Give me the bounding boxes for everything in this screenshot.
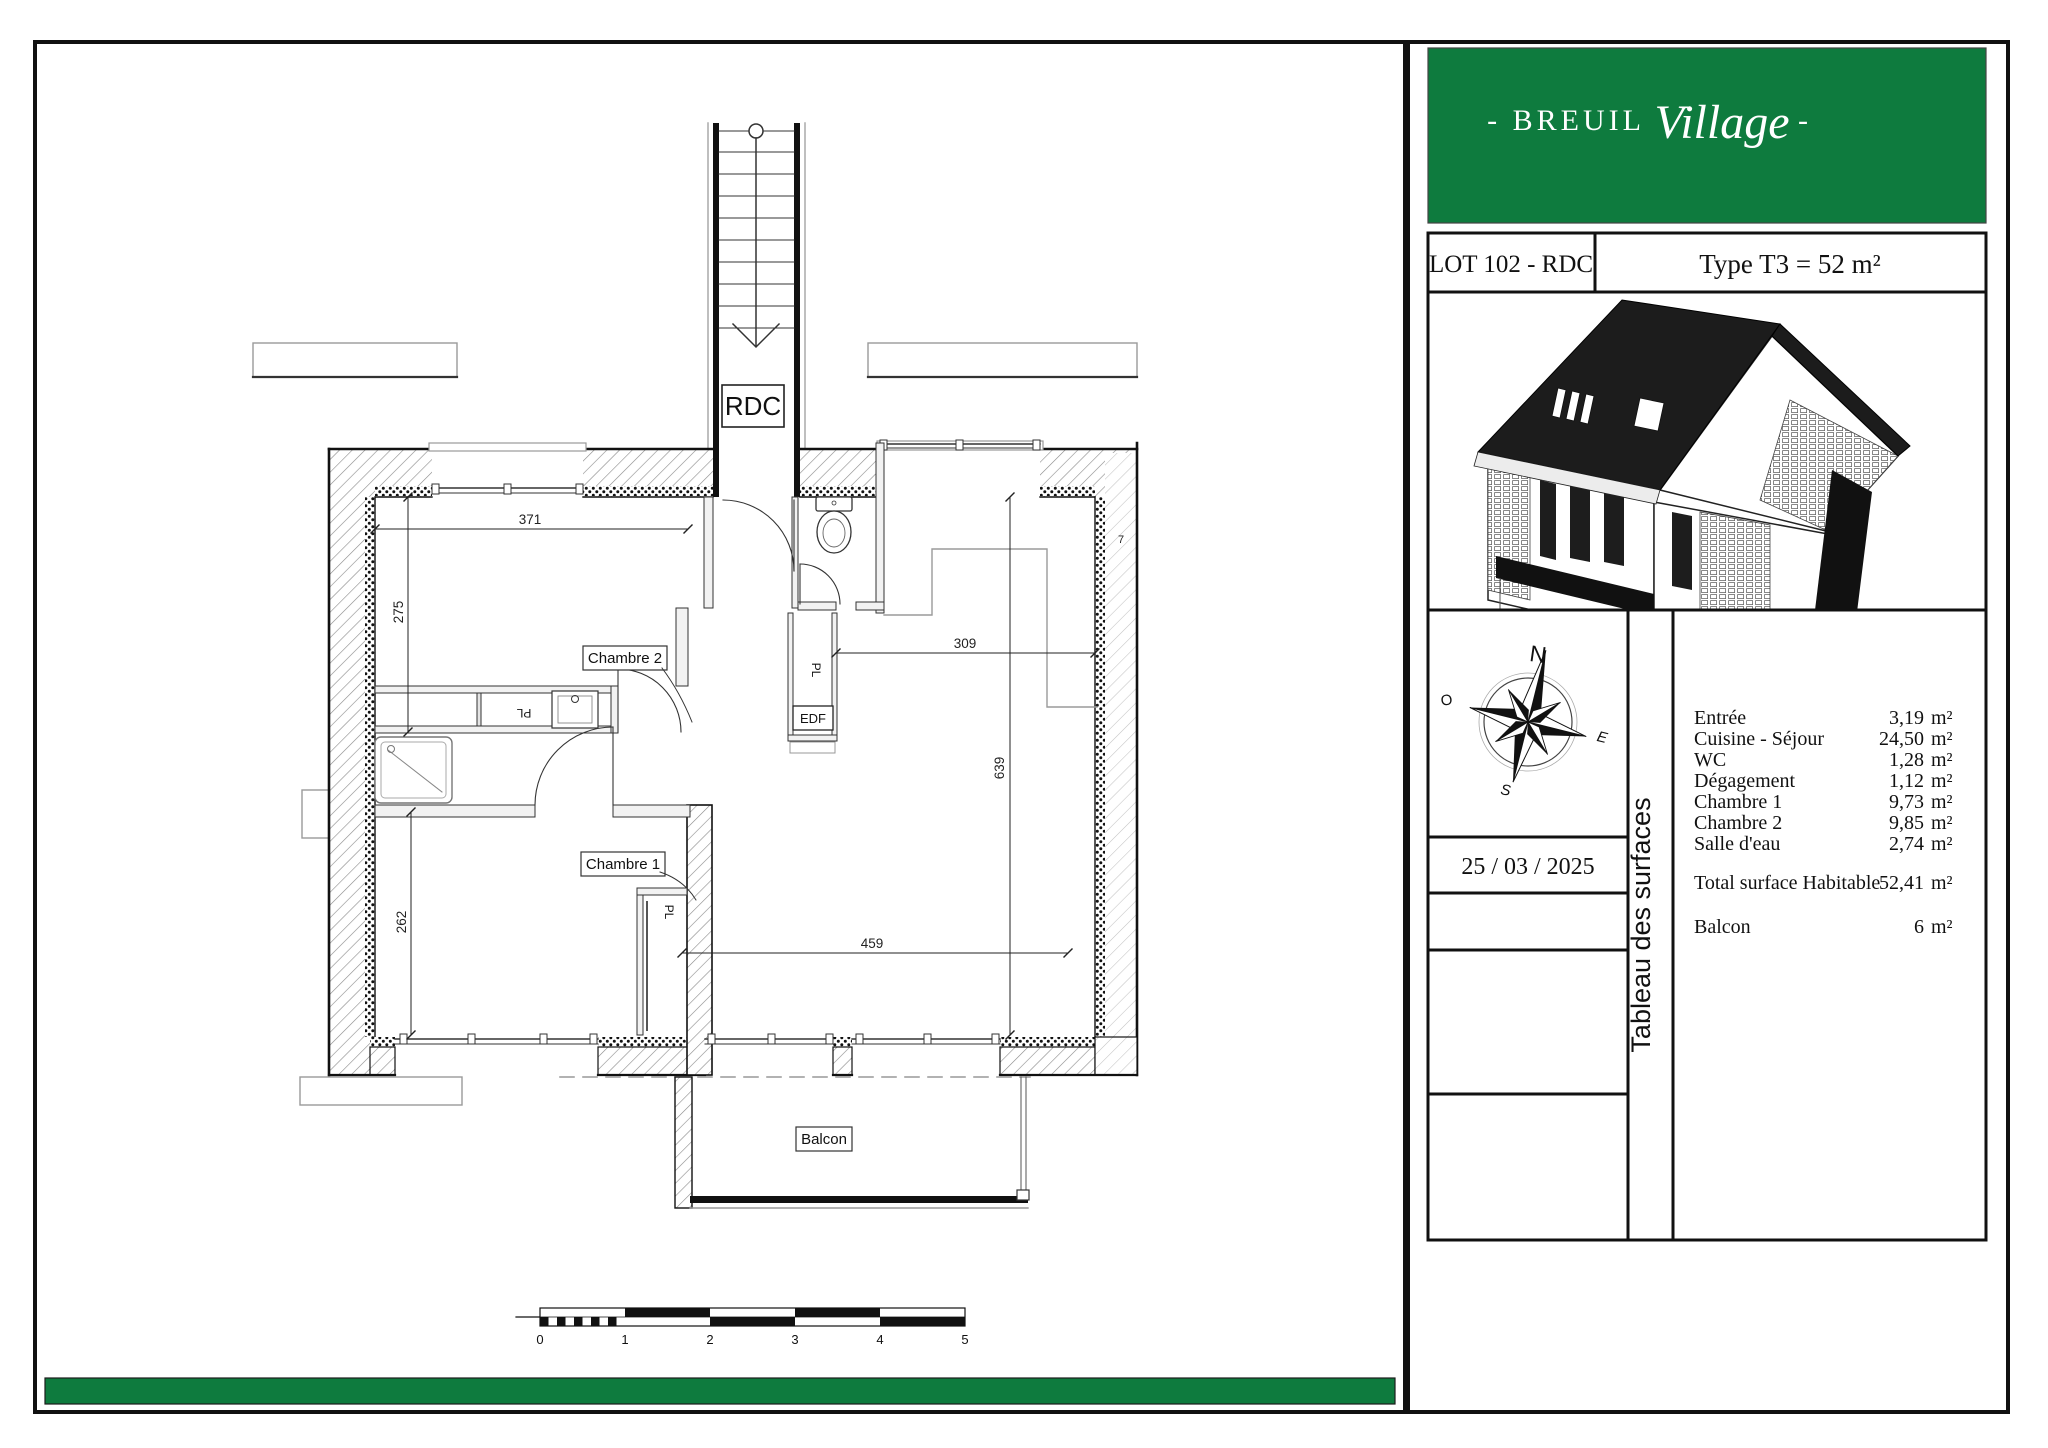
drawing-canvas: RDC <box>0 0 2048 1448</box>
room-label-chambre2: Chambre 2 <box>588 650 662 667</box>
scale-4: 4 <box>876 1332 883 1347</box>
dim-left-top: 275 <box>391 601 406 624</box>
dim-partial: 7 <box>1118 534 1124 546</box>
closet-label-3: PL <box>662 905 676 920</box>
svg-text:9,85: 9,85 <box>1889 812 1924 834</box>
washbasin-icon <box>552 691 598 728</box>
svg-text:m²: m² <box>1931 791 1953 813</box>
lot-type: Type T3 = 52 m² <box>1699 249 1880 279</box>
footer-green-band <box>45 1378 1395 1404</box>
svg-text:m²: m² <box>1931 812 1953 834</box>
brand-name-prefix: - BREUIL <box>1487 104 1645 137</box>
svg-text:Chambre 1: Chambre 1 <box>1694 791 1782 813</box>
svg-text:m²: m² <box>1931 749 1953 771</box>
surface-row-label: Entrée <box>1694 707 1746 729</box>
meter-box <box>790 742 835 753</box>
svg-text:m²: m² <box>1931 833 1953 855</box>
svg-text:1,12: 1,12 <box>1889 770 1924 792</box>
scale-2: 2 <box>706 1332 713 1347</box>
brand-name-suffix: - <box>1798 104 1808 137</box>
plan-sheet-frame <box>35 42 1405 1412</box>
closet-label-2: PL <box>809 663 823 678</box>
surface-row-value: 3,19 <box>1889 707 1924 729</box>
surface-total-label: Total surface Habitable <box>1694 872 1880 894</box>
svg-text:Dégagement: Dégagement <box>1694 770 1796 792</box>
dim-middle: 309 <box>954 636 977 651</box>
svg-text:2,74: 2,74 <box>1889 833 1924 855</box>
svg-text:Chambre 2: Chambre 2 <box>1694 812 1782 834</box>
shower-icon <box>375 737 452 803</box>
balcony-railing <box>690 1196 1028 1203</box>
surface-total-value: 52,41 <box>1879 872 1924 894</box>
room-label-balcon: Balcon <box>801 1131 847 1148</box>
edf-label: EDF <box>800 711 826 726</box>
svg-text:24,50: 24,50 <box>1879 728 1924 750</box>
svg-text:WC: WC <box>1694 749 1726 771</box>
scale-0: 0 <box>536 1332 543 1347</box>
svg-text:m²: m² <box>1931 728 1953 750</box>
surface-balcony-value: 6 <box>1914 916 1924 938</box>
stair-start-icon <box>749 124 763 138</box>
brand-name-script: Village <box>1654 96 1789 149</box>
scale-3: 3 <box>791 1332 798 1347</box>
closet-label-1: PL <box>516 706 531 720</box>
svg-text:9,73: 9,73 <box>1889 791 1924 813</box>
svg-text:m²: m² <box>1931 770 1953 792</box>
room-label-chambre1: Chambre 1 <box>586 856 660 873</box>
dim-left-bottom: 262 <box>394 911 409 934</box>
surface-unit: m² <box>1931 707 1953 729</box>
scale-1: 1 <box>621 1332 628 1347</box>
stair-level-label: RDC <box>725 391 781 421</box>
plan-date: 25 / 03 / 2025 <box>1461 854 1594 880</box>
lot-number: LOT 102 - RDC <box>1429 251 1593 278</box>
svg-text:m²: m² <box>1931 916 1953 938</box>
svg-text:Cuisine - Séjour: Cuisine - Séjour <box>1694 728 1824 750</box>
toilet-icon <box>816 497 852 553</box>
dim-top: 371 <box>519 512 542 527</box>
dim-right: 639 <box>992 757 1007 780</box>
plan-sheet: RDC <box>0 0 2048 1448</box>
surface-balcony-label: Balcon <box>1694 916 1751 938</box>
svg-text:Salle d'eau: Salle d'eau <box>1694 833 1780 855</box>
svg-text:1,28: 1,28 <box>1889 749 1924 771</box>
compass-west-label: O <box>1440 691 1453 709</box>
svg-text:m²: m² <box>1931 872 1953 894</box>
dim-bottom: 459 <box>861 936 884 951</box>
surface-table-title: Tableau des surfaces <box>1626 797 1656 1052</box>
scale-5: 5 <box>961 1332 968 1347</box>
title-block: - BREUIL Village - LOT 102 - RDC Type T3… <box>1408 42 2008 1412</box>
